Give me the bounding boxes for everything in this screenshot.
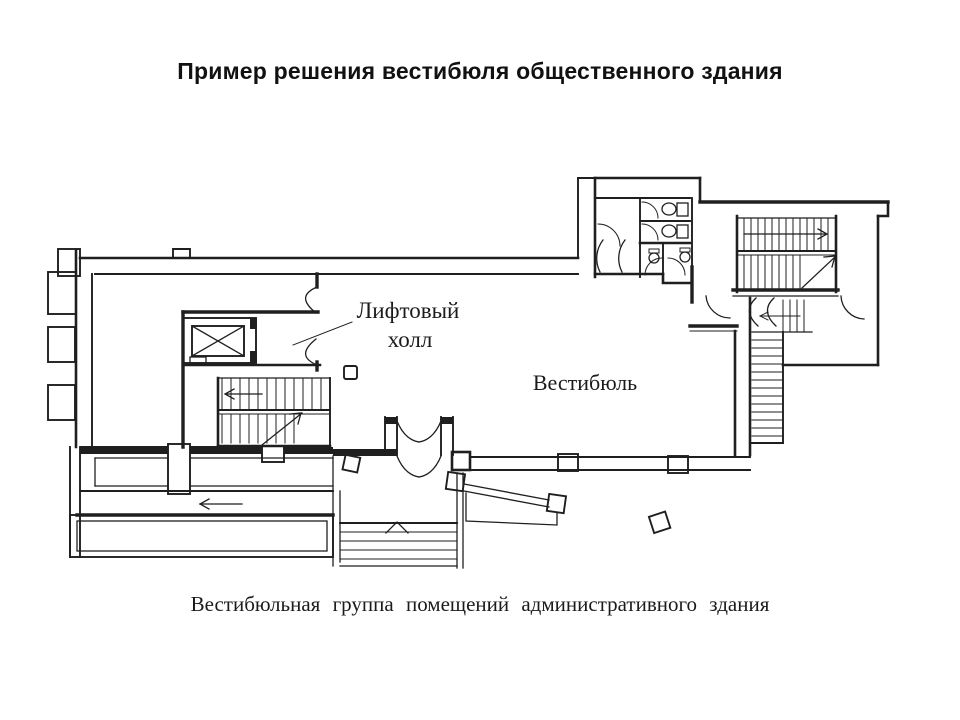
- up-arrow-left: [225, 389, 262, 399]
- column: [452, 452, 470, 470]
- elevator-shaft: [183, 318, 257, 364]
- main-staircase: [218, 378, 330, 447]
- left-arrow: [200, 499, 242, 509]
- lift-hall-doors: [306, 274, 317, 370]
- planter-strip: [70, 515, 333, 557]
- leader-line: [293, 322, 352, 345]
- lift-hall-label: Лифтовый холл: [293, 298, 459, 352]
- cloakroom-band: [70, 447, 333, 557]
- door-arc: [706, 296, 730, 318]
- vestibule-label: Вестибюль: [533, 370, 637, 395]
- ramp-corridor: [77, 499, 333, 515]
- side-exterior-stair: [750, 300, 812, 443]
- tilted-column: [342, 455, 360, 473]
- ramp: [446, 472, 566, 525]
- entrance-steps: [333, 456, 463, 568]
- vestibule-right-wall: [735, 298, 750, 455]
- figure-caption: Вестибюльная группа помещений администра…: [0, 592, 960, 617]
- toilet-block: [595, 198, 692, 302]
- door-arc: [841, 296, 864, 319]
- figure-page: Пример решения вестибюля общественного з…: [0, 0, 960, 720]
- pillar: [168, 444, 190, 494]
- basin-fixture: [649, 248, 690, 263]
- column: [344, 366, 357, 379]
- svg-text:Лифтовый: Лифтовый: [357, 298, 460, 323]
- column: [262, 446, 284, 462]
- svg-text:холл: холл: [388, 327, 433, 352]
- window-bays: [48, 272, 76, 420]
- right-staircase: [706, 216, 864, 319]
- wc-entry-door: [597, 240, 603, 272]
- south-wall: [80, 444, 750, 494]
- entrance-tambour: [385, 417, 453, 477]
- ramp-post: [446, 472, 465, 491]
- entrance-doors: [397, 421, 441, 477]
- ramp-post: [547, 494, 566, 513]
- tilted-column: [649, 512, 670, 533]
- northeast-doorway: [690, 267, 776, 331]
- toilet-door-arcs: [598, 202, 685, 275]
